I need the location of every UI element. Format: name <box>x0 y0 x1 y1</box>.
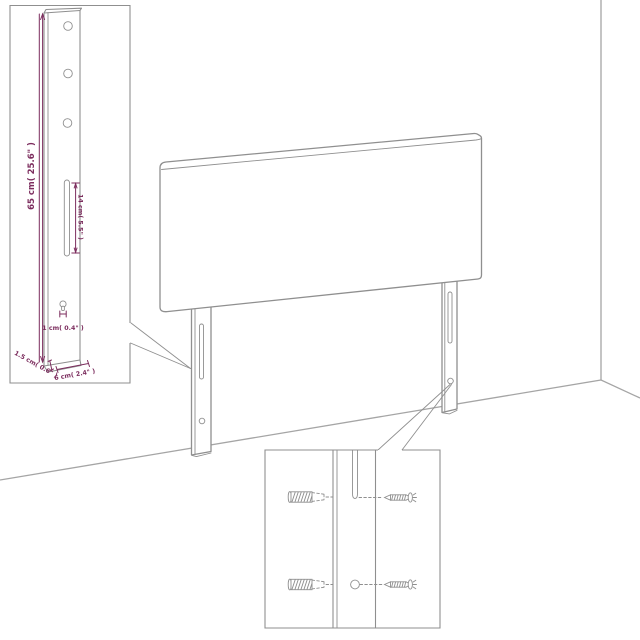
panel-outline <box>160 133 482 311</box>
callout-line <box>131 323 191 369</box>
leg-keyhole-notch <box>62 306 65 310</box>
callout-line <box>402 385 452 451</box>
headboard-panel <box>160 133 482 311</box>
left-leg-hole <box>199 418 205 424</box>
leg-hole-top <box>64 22 73 31</box>
callout-wedge-left <box>131 323 191 369</box>
inset-mounting-detail <box>265 450 440 628</box>
diagram-canvas: 65 cm( 25.6" ) 14 cm( 5.5" ) 1 cm( 0.4" … <box>0 0 640 640</box>
callout-line <box>378 385 450 451</box>
left-leg-slot <box>200 324 204 379</box>
leg-hole-middle <box>64 69 73 78</box>
right-leg-slot <box>448 292 452 343</box>
hole-label: 1 cm( 0.4" ) <box>42 325 84 332</box>
callout-wedge-right <box>378 385 452 451</box>
headboard-assembly-diagram: 65 cm( 25.6" ) 14 cm( 5.5" ) 1 cm( 0.4" … <box>0 0 640 640</box>
leg-hole-lower <box>63 119 72 128</box>
headboard-right-leg <box>442 270 457 414</box>
height-label: 65 cm( 25.6" ) <box>27 142 37 210</box>
headboard-left-leg <box>192 300 212 457</box>
callout-line <box>131 343 191 369</box>
screw-head <box>408 493 412 502</box>
screw-head <box>408 580 412 589</box>
slot-label: 14 cm( 5.5" ) <box>77 194 84 240</box>
floor-line-right <box>601 380 640 398</box>
inset-leg-detail: 65 cm( 25.6" ) 14 cm( 5.5" ) 1 cm( 0.4" … <box>10 6 130 384</box>
strip-screw-hole <box>351 580 360 589</box>
right-leg-hole <box>448 378 454 384</box>
leg-slot <box>64 180 69 256</box>
